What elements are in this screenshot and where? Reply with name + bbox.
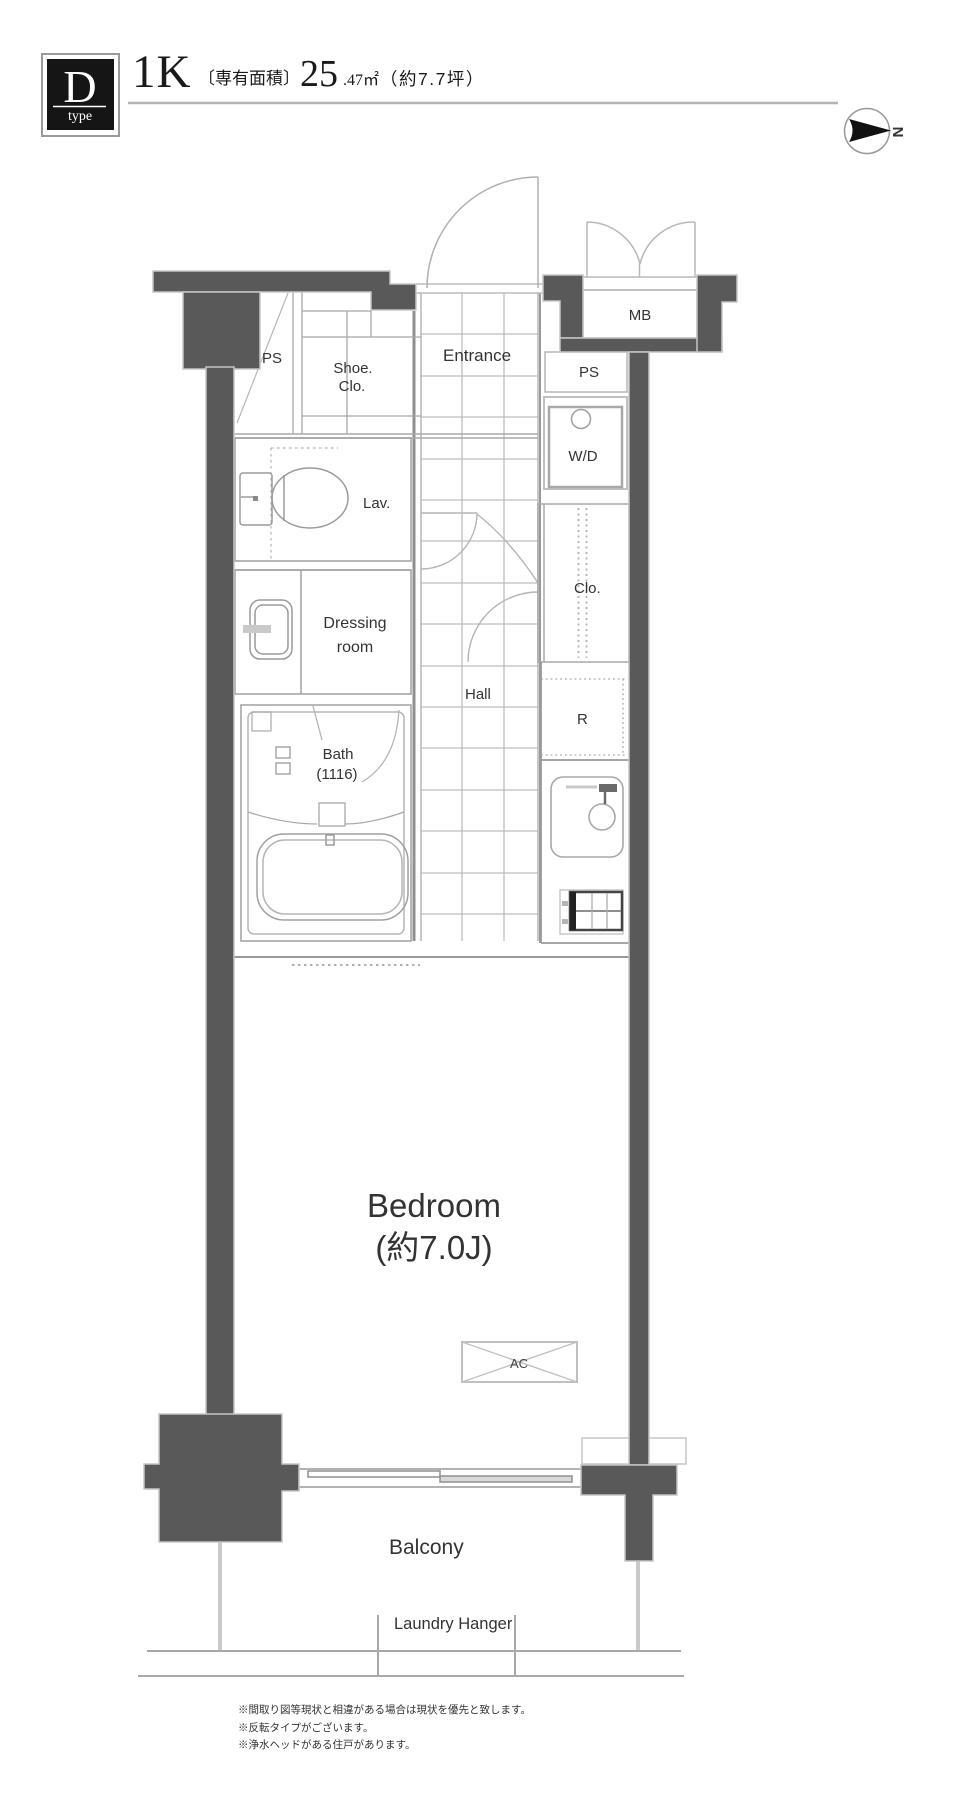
svg-text:W/D: W/D xyxy=(568,448,597,465)
svg-text:※浄水ヘッドがある住戸があります。: ※浄水ヘッドがある住戸があります。 xyxy=(238,1738,415,1751)
svg-text:Entrance: Entrance xyxy=(443,346,511,365)
svg-text:type: type xyxy=(68,109,92,124)
svg-text:room: room xyxy=(337,639,373,656)
svg-text:D: D xyxy=(63,61,96,112)
svg-text:〔専有面積〕: 〔専有面積〕 xyxy=(198,69,300,88)
svg-text:Lav.: Lav. xyxy=(363,495,390,512)
svg-text:PS: PS xyxy=(262,350,282,367)
svg-text:Bedroom: Bedroom xyxy=(367,1187,501,1224)
svg-text:Laundry Hanger: Laundry Hanger xyxy=(394,1615,513,1633)
svg-text:Balcony: Balcony xyxy=(389,1536,464,1559)
svg-text:25: 25 xyxy=(300,53,338,95)
svg-text:※間取り図等現状と相違がある場合は現状を優先と致します。: ※間取り図等現状と相違がある場合は現状を優先と致します。 xyxy=(238,1703,531,1716)
svg-text:MB: MB xyxy=(629,307,652,324)
svg-text:Hall: Hall xyxy=(465,686,491,703)
svg-text:.47㎡: .47㎡ xyxy=(343,71,379,89)
svg-text:Bath: Bath xyxy=(323,746,354,763)
svg-text:(1116): (1116) xyxy=(316,766,357,783)
svg-text:※反転タイプがございます。: ※反転タイプがございます。 xyxy=(238,1721,373,1734)
svg-text:Clo.: Clo. xyxy=(574,580,601,597)
svg-text:Clo.: Clo. xyxy=(339,378,366,395)
svg-text:Dressing: Dressing xyxy=(323,615,386,632)
svg-text:（約7.7坪）: （約7.7坪） xyxy=(380,69,485,89)
svg-text:Shoe.: Shoe. xyxy=(333,360,372,377)
svg-text:(約7.0J): (約7.0J) xyxy=(375,1229,492,1266)
svg-text:N: N xyxy=(889,127,906,138)
svg-text:1K: 1K xyxy=(132,46,191,98)
svg-text:PS: PS xyxy=(579,364,599,381)
svg-text:R: R xyxy=(577,711,588,728)
svg-text:AC: AC xyxy=(510,1356,528,1371)
